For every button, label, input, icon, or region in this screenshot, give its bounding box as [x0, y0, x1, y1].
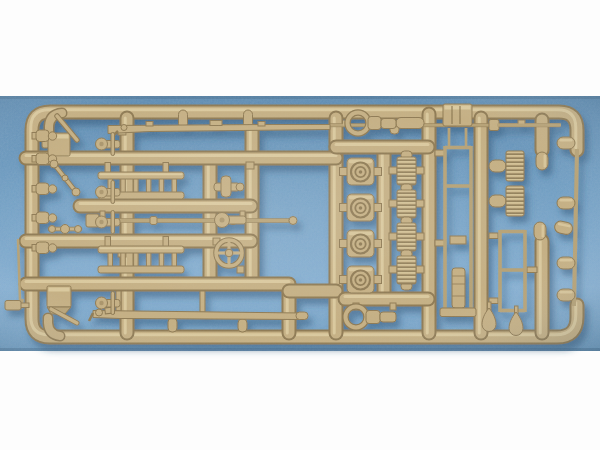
photo-vignette: [0, 96, 600, 351]
page-background: [0, 0, 600, 450]
sprue-photo: [0, 0, 600, 450]
